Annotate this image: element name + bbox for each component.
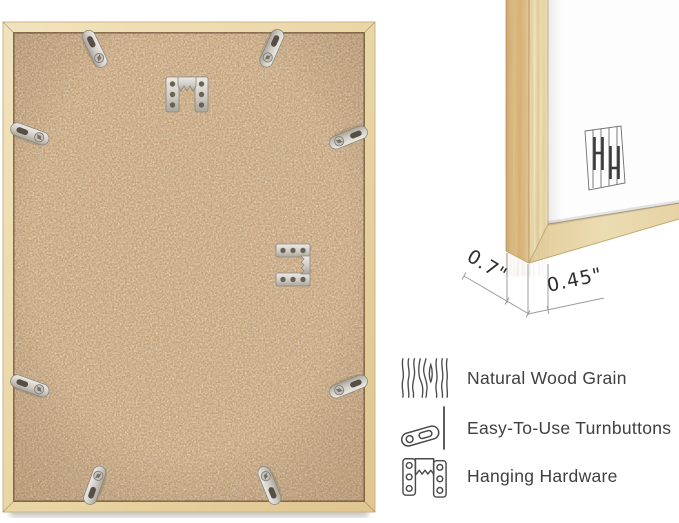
feature-turnbuttons: Easy-To-Use Turnbuttons (398, 404, 676, 452)
feature-natural-wood-grain: Natural Wood Grain (398, 354, 676, 402)
mat-shading (548, 0, 562, 224)
feature-hanging-hardware: Hanging Hardware (398, 452, 676, 500)
mat-board (548, 0, 679, 224)
turnbutton-icon (398, 405, 452, 451)
feature-label: Easy-To-Use Turnbuttons (467, 418, 671, 439)
side-grain (506, 0, 529, 263)
feature-label: Natural Wood Grain (467, 368, 627, 389)
product-image: 0.7" 0.45" Natural Wood Grain Ea (0, 0, 679, 523)
feature-label: Hanging Hardware (467, 466, 618, 487)
face-grain (529, 0, 548, 263)
wood-grain-icon (398, 357, 452, 399)
frame-back-view (3, 22, 375, 517)
hanging-hardware-icon (398, 453, 452, 499)
face-dimension-label: 0.45" (545, 264, 604, 297)
mdf-vignette (13, 32, 365, 502)
frame-corner-closeup: 0.7" 0.45" (462, 0, 679, 318)
